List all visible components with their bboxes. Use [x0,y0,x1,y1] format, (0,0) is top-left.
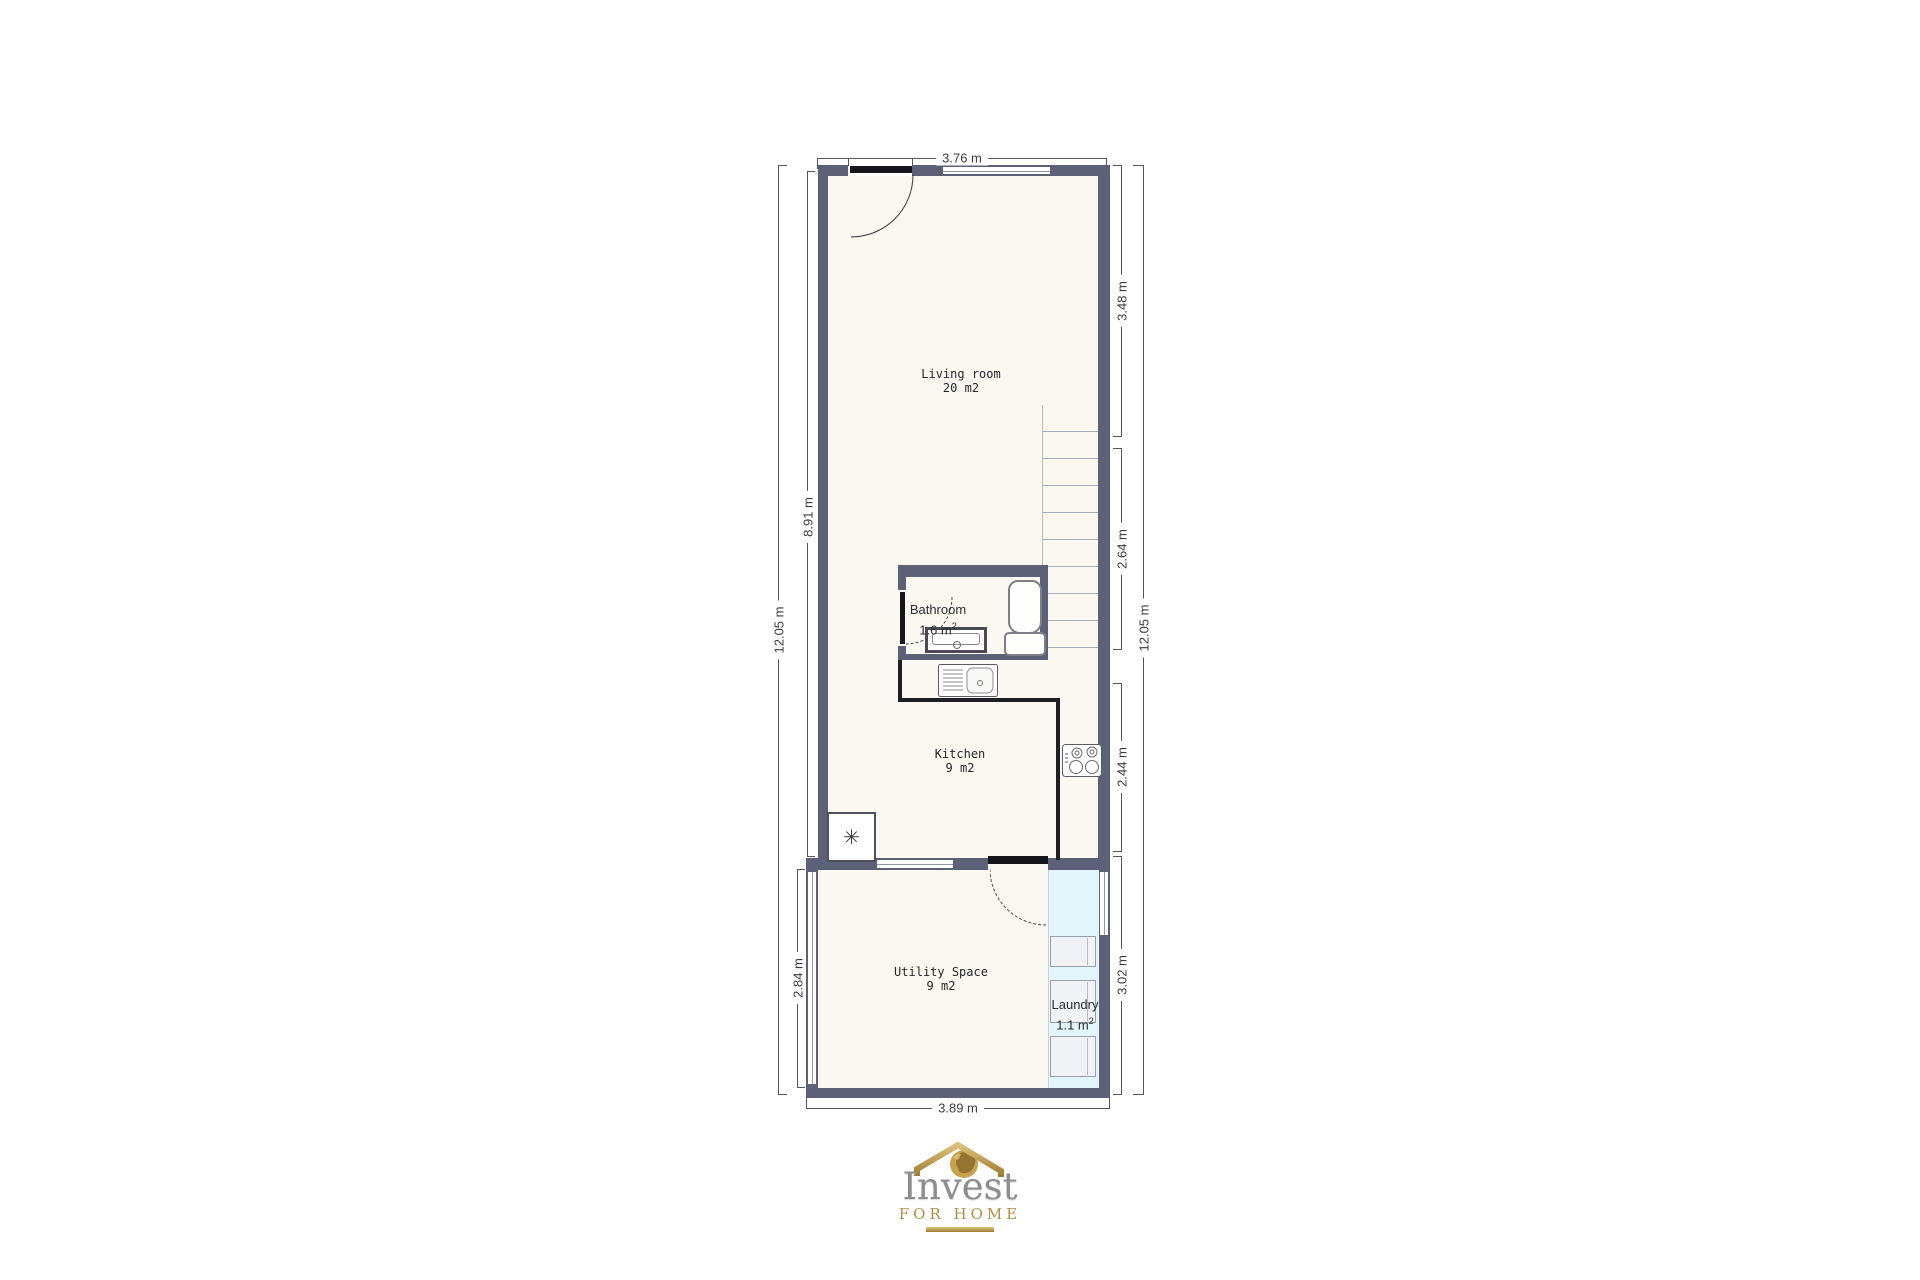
dim-right-utility-label: 3.02 m [1115,949,1130,1001]
logo-subtitle: FOR HOME [880,1205,1040,1223]
bathroom-label: Bathroom 1.6 m2 [910,601,966,638]
bathroom-area: 1.6 m2 [910,618,966,638]
living-room-label: Living room 20 m2 [921,367,1000,395]
kitchen-name: Kitchen [935,747,986,761]
laundry-name: Laundry [1052,996,1099,1013]
dim-top-cap-l [817,158,818,169]
dim-right-total-label: 12.05 m [1137,599,1152,658]
dim-right-stairs-label: 2.64 m [1115,523,1130,575]
stairs [1042,405,1099,655]
dim-right-living-cap-t [1113,165,1122,166]
right-wall [1098,165,1110,1098]
dim-left-lower-cap-b [797,1087,805,1088]
washer-icon [1050,936,1096,967]
dim-left-total-label: 12.05 m [772,601,787,660]
dim-top-label: 3.76 m [936,151,988,166]
kitchen-sink-icon [938,664,998,697]
dim-right-living-label: 3.48 m [1115,275,1130,327]
dim-left-upper-cap-t [807,171,815,172]
utility-name: Utility Space [894,965,988,979]
logo-title: Invest [880,1170,1040,1204]
entry-door-swing-icon [851,175,915,239]
utility-door-leaf-icon [988,856,1048,864]
kitchen-wall-h [898,698,1060,702]
floor-plan: ✳ Living room 20 m2 Bathroom 1.6 m2 Kitc… [0,0,1920,1280]
toilet-tank-icon [1004,632,1046,656]
living-room-area: 20 m2 [921,381,1000,395]
dim-right-utility-cap-b [1113,1094,1122,1095]
dim-right-kitchen-cap-b [1113,851,1122,852]
utility-label: Utility Space 9 m2 [894,965,988,993]
dim-right-total-cap-b [1133,1094,1144,1095]
stove-icon [1062,744,1102,777]
snowflake-icon: ✳ [843,825,860,850]
dim-left-total-cap-t [778,165,787,166]
dim-right-total-cap-t [1133,165,1144,166]
dim-bottom-label: 3.89 m [932,1101,984,1116]
bathroom-name: Bathroom [910,601,966,618]
dim-left-lower-label: 2.84 m [791,952,806,1004]
dim-right-utility-cap-t [1113,856,1122,857]
dim-left-lower-cap-t [797,869,805,870]
dim-left-upper-cap-b [807,856,815,857]
laundry-label: Laundry 1.1 m2 [1052,996,1099,1033]
kitchen-wall-v1 [898,660,902,702]
divider-window-icon [877,860,953,868]
dim-top-cap-r [1106,158,1107,169]
kitchen-wall-v2 [1056,700,1060,860]
dim-right-kitchen-cap-t [1113,683,1122,684]
entry-door-leaf-icon [850,166,912,173]
dim-left-upper-label: 8.91 m [801,491,816,543]
kitchen-label: Kitchen 9 m2 [935,747,986,775]
brand-logo: Invest FOR HOME [880,1140,1040,1232]
dim-right-living-cap-b [1113,436,1122,437]
kitchen-area: 9 m2 [935,761,986,775]
left-wall-upper [818,165,828,858]
dim-left-total-cap-b [778,1094,787,1095]
bottom-wall [806,1088,1110,1098]
utility-area: 9 m2 [894,979,988,993]
dim-right-kitchen-label: 2.44 m [1115,741,1130,793]
washer-icon [1050,1036,1096,1077]
dim-top-tick1 [848,158,849,166]
living-room-name: Living room [921,367,1000,381]
living-window-icon [943,167,1050,174]
hvac-box: ✳ [827,812,876,862]
laundry-area: 1.1 m2 [1052,1013,1099,1033]
dim-right-stairs-cap-b [1113,649,1122,650]
logo-bar [926,1227,994,1232]
utility-window-icon [808,872,816,1084]
dim-right-stairs-cap-t [1113,448,1122,449]
toilet-icon [1008,580,1042,634]
dim-top-tick2 [912,158,913,166]
dim-bottom-cap-l [806,1098,807,1109]
utility-door-swing-icon [990,869,1047,926]
laundry-window-icon [1100,872,1108,935]
dim-bottom-cap-r [1109,1098,1110,1109]
